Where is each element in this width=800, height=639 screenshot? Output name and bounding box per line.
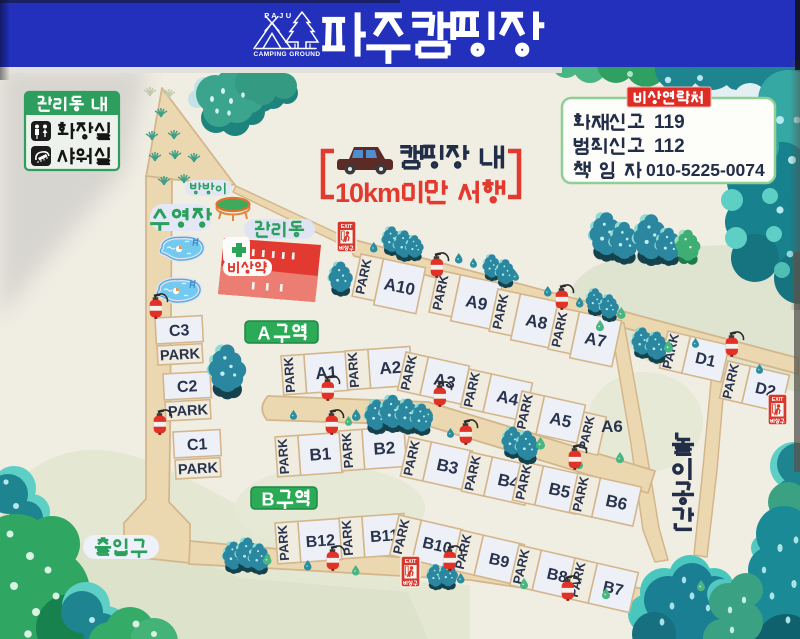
svg-text:C1: C1 — [187, 436, 208, 454]
svg-text:C2: C2 — [177, 378, 198, 396]
svg-text:PARK: PARK — [275, 524, 293, 561]
svg-text:PARK: PARK — [275, 437, 293, 474]
svg-text:PARK: PARK — [281, 356, 299, 393]
svg-text:119: 119 — [654, 112, 685, 133]
svg-text:010-5225-0074: 010-5225-0074 — [646, 160, 765, 180]
svg-text:10km: 10km — [335, 178, 400, 208]
svg-text:PARK: PARK — [339, 431, 357, 468]
svg-text:C3: C3 — [169, 322, 190, 340]
svg-text:B1: B1 — [309, 444, 332, 464]
svg-text:112: 112 — [654, 136, 685, 157]
svg-text:PARK: PARK — [345, 351, 363, 388]
svg-text:A: A — [258, 324, 271, 344]
svg-text:CAMPING GROUND: CAMPING GROUND — [254, 51, 321, 58]
svg-text:B: B — [262, 490, 275, 510]
svg-text:B2: B2 — [373, 438, 396, 458]
svg-text:PARK: PARK — [160, 346, 201, 364]
svg-text:A6: A6 — [601, 417, 623, 436]
svg-text:PARK: PARK — [168, 402, 209, 420]
svg-text:A2: A2 — [379, 358, 402, 378]
svg-text:PAJU: PAJU — [264, 11, 293, 20]
svg-text:PARK: PARK — [178, 460, 219, 478]
svg-text:PARK: PARK — [339, 519, 357, 556]
